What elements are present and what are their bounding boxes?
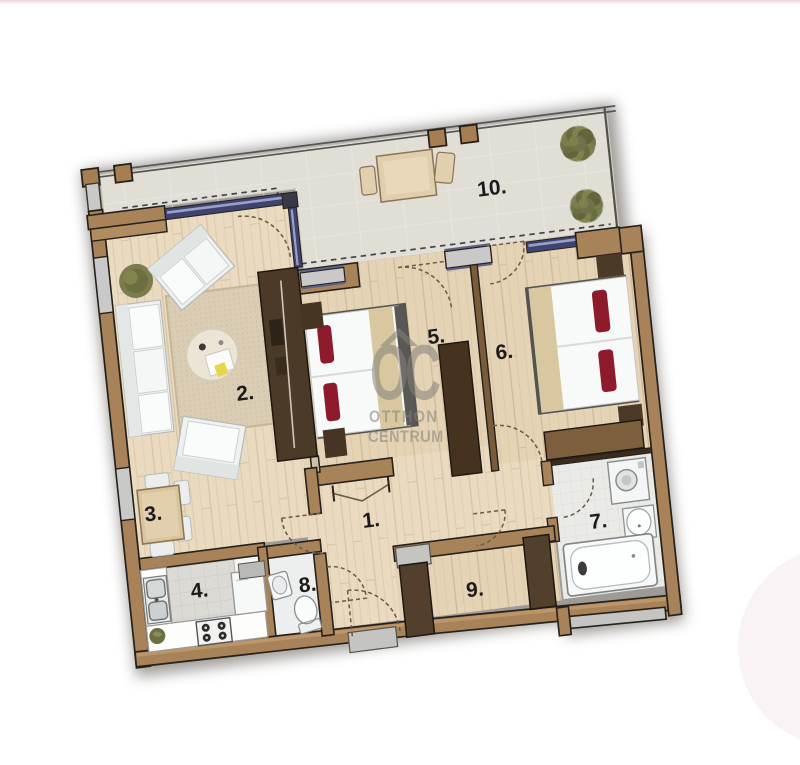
- svg-text:3.: 3.: [143, 502, 163, 527]
- svg-text:4.: 4.: [190, 578, 210, 603]
- svg-text:10.: 10.: [476, 175, 507, 202]
- svg-text:CENTRUM: CENTRUM: [368, 428, 444, 446]
- svg-text:2.: 2.: [235, 381, 255, 406]
- svg-text:8.: 8.: [298, 572, 318, 597]
- svg-text:7.: 7.: [589, 509, 609, 534]
- svg-text:1.: 1.: [361, 508, 381, 533]
- svg-text:OC: OC: [370, 329, 440, 416]
- svg-text:OTTHON: OTTHON: [369, 408, 438, 426]
- svg-text:6.: 6.: [494, 340, 514, 365]
- svg-text:9.: 9.: [465, 577, 485, 602]
